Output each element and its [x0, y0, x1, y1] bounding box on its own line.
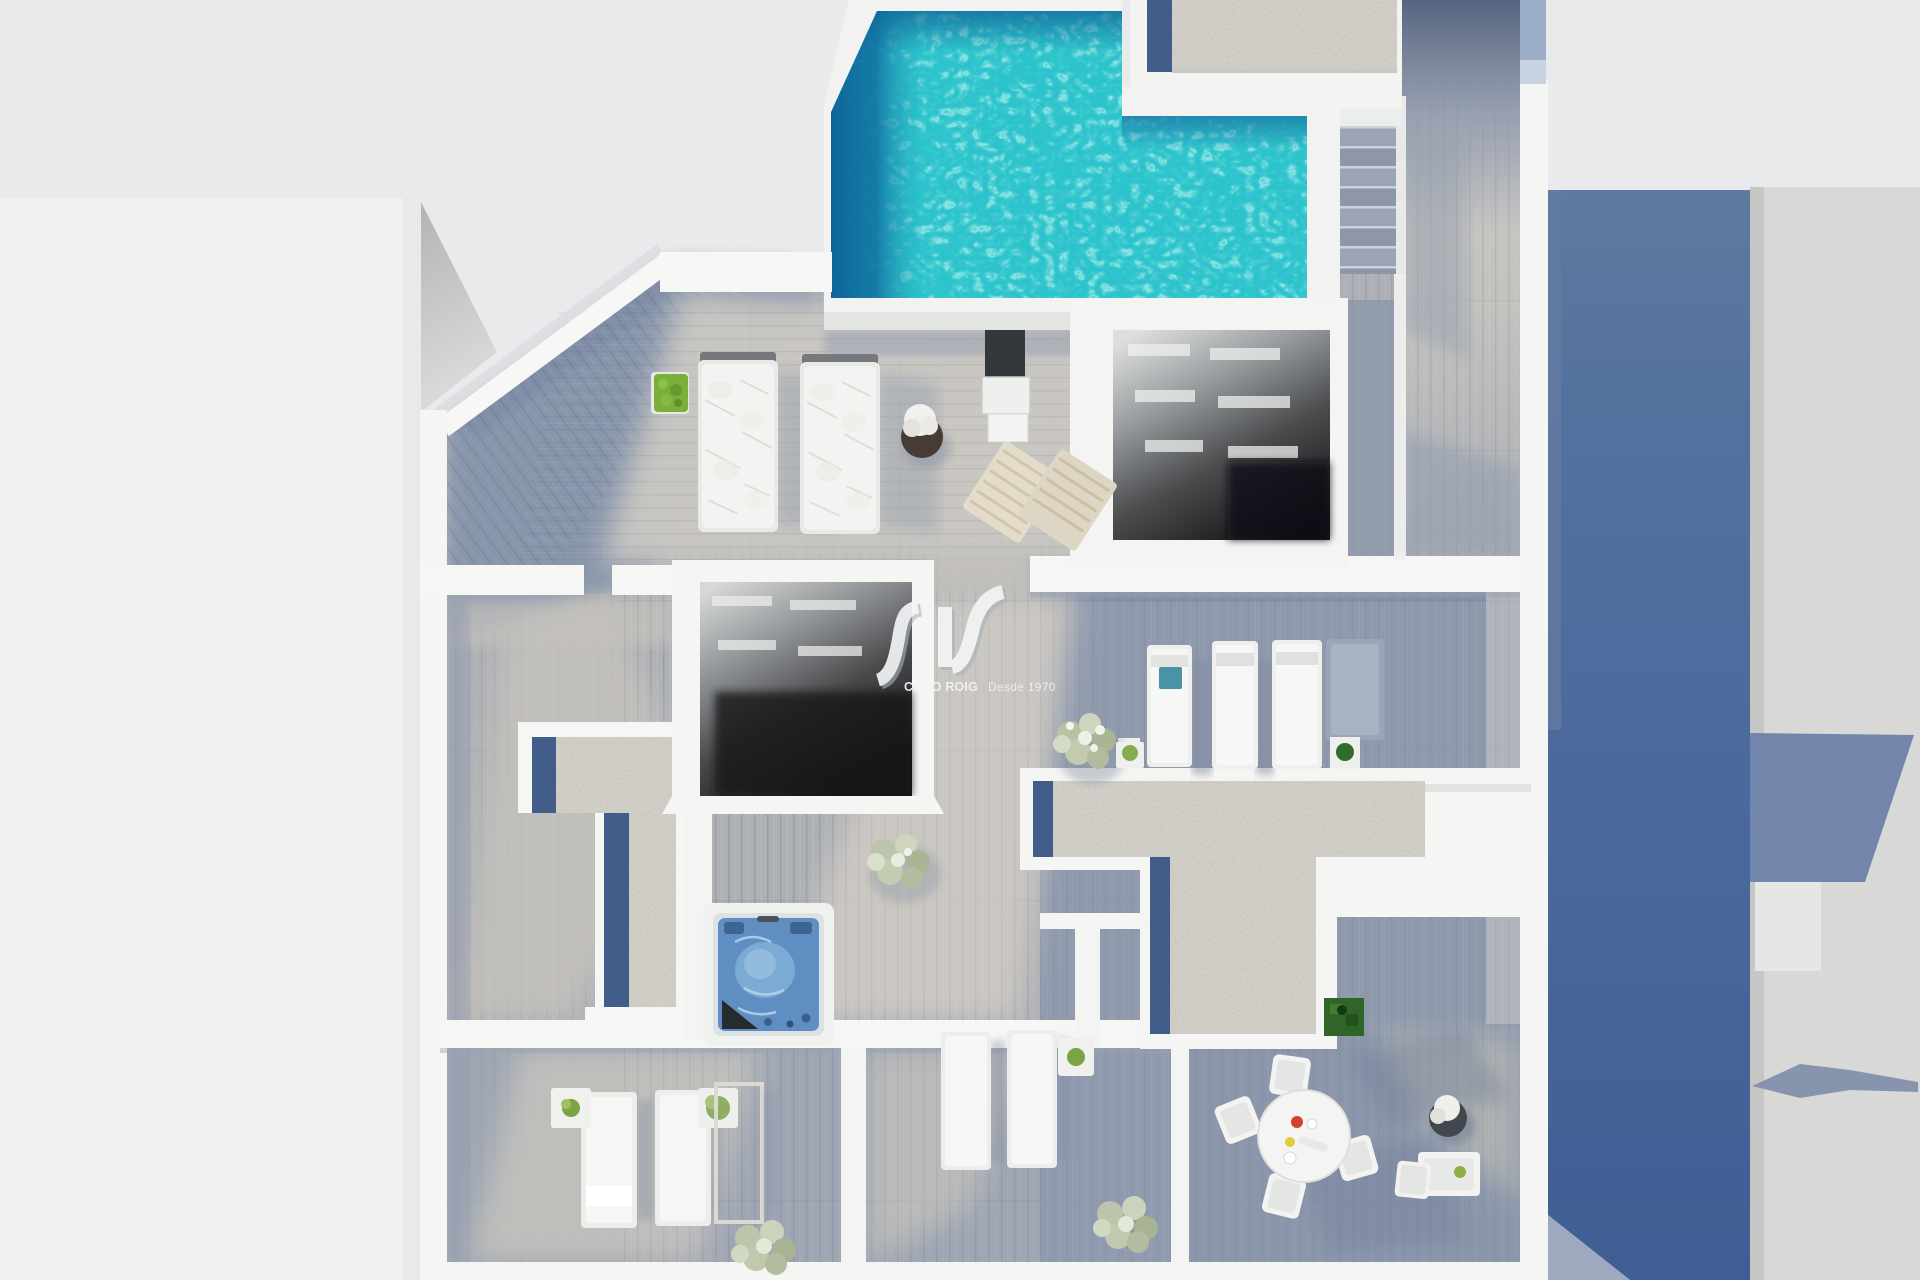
svg-text:CABO ROIG: CABO ROIG: [904, 680, 978, 694]
svg-text:Desde 1970: Desde 1970: [988, 680, 1056, 694]
